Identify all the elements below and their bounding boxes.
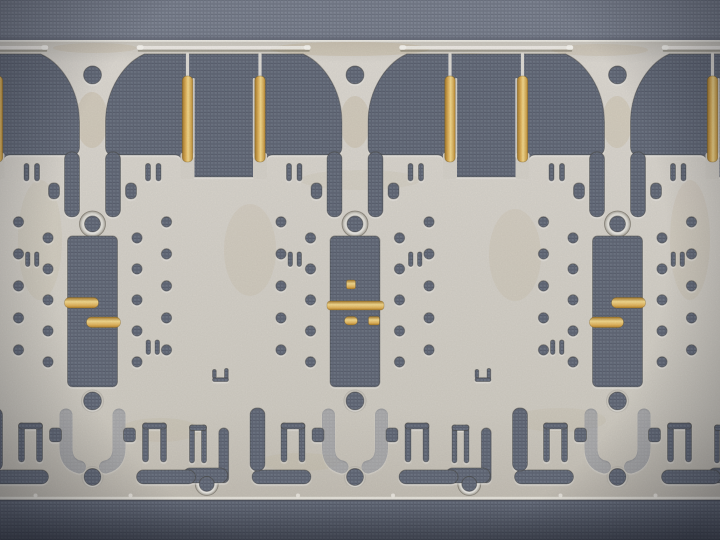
leadframe-photo [0,0,720,540]
vignette [0,0,720,540]
photo-canvas [0,0,720,540]
leadframe-illustration [0,0,720,540]
